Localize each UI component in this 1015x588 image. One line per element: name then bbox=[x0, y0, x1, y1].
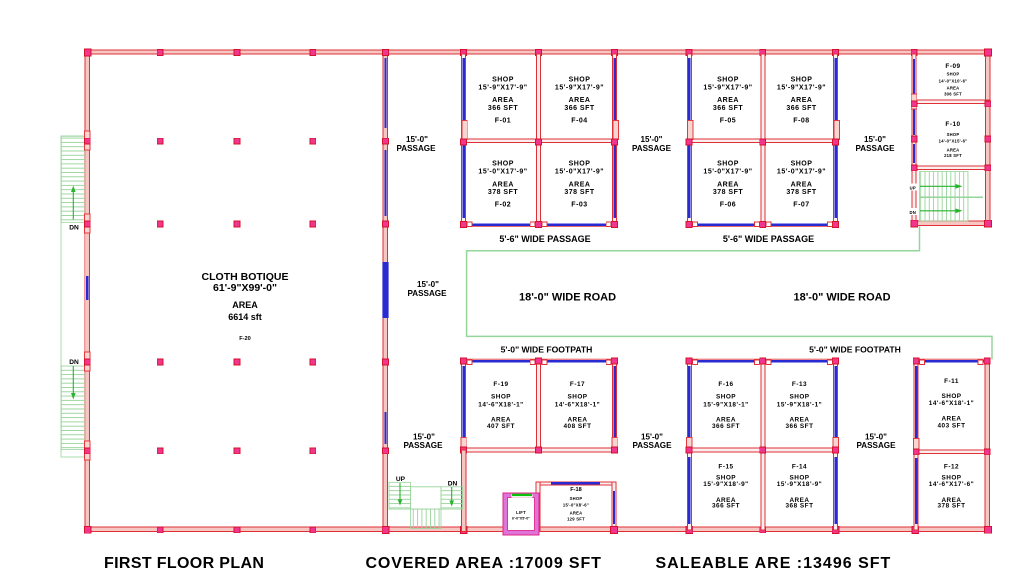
svg-text:SHOP: SHOP bbox=[791, 160, 813, 167]
svg-text:5'-0" WIDE FOOTPATH: 5'-0" WIDE FOOTPATH bbox=[809, 344, 901, 354]
svg-text:PASSAGE: PASSAGE bbox=[404, 441, 444, 450]
svg-text:AREA: AREA bbox=[947, 147, 960, 152]
svg-text:PASSAGE: PASSAGE bbox=[856, 144, 896, 153]
svg-text:SHOP: SHOP bbox=[569, 160, 591, 167]
svg-text:378 SFT: 378 SFT bbox=[564, 189, 595, 196]
svg-text:5'-6" WIDE PASSAGE: 5'-6" WIDE PASSAGE bbox=[723, 234, 814, 244]
svg-text:368 SFT: 368 SFT bbox=[785, 503, 813, 510]
svg-text:AREA: AREA bbox=[941, 415, 961, 422]
svg-text:218 SFT: 218 SFT bbox=[944, 153, 962, 158]
svg-text:FIRST FLOOR PLAN: FIRST FLOOR PLAN bbox=[104, 555, 264, 572]
svg-text:15'-9"X18'-1": 15'-9"X18'-1" bbox=[703, 401, 748, 408]
svg-text:PASSAGE: PASSAGE bbox=[857, 441, 897, 450]
svg-text:F-10: F-10 bbox=[945, 121, 960, 128]
svg-text:AREA: AREA bbox=[569, 97, 591, 104]
svg-text:15'-0": 15'-0" bbox=[641, 135, 663, 144]
svg-text:UP: UP bbox=[396, 476, 406, 483]
svg-text:14'-0"X10'-6": 14'-0"X10'-6" bbox=[939, 78, 968, 83]
svg-text:5'-0" WIDE FOOTPATH: 5'-0" WIDE FOOTPATH bbox=[501, 344, 593, 354]
svg-text:15'-9"X18'-1": 15'-9"X18'-1" bbox=[777, 401, 822, 408]
svg-text:306 SFT: 306 SFT bbox=[944, 92, 962, 97]
svg-text:F-18: F-18 bbox=[570, 487, 582, 493]
svg-text:PASSAGE: PASSAGE bbox=[408, 289, 448, 298]
svg-text:14'-6"X18'-1": 14'-6"X18'-1" bbox=[478, 401, 523, 408]
svg-text:15'-0"X17'-9": 15'-0"X17'-9" bbox=[478, 169, 527, 176]
svg-text:15'-0": 15'-0" bbox=[864, 135, 886, 144]
svg-text:14'-0"X15'-6": 14'-0"X15'-6" bbox=[939, 138, 968, 143]
svg-text:UP: UP bbox=[910, 185, 916, 190]
svg-text:DN: DN bbox=[69, 225, 79, 232]
svg-text:15'-0": 15'-0" bbox=[865, 432, 887, 441]
svg-text:SHOP: SHOP bbox=[789, 394, 809, 401]
svg-text:SALEABLE ARE :13496 SFT: SALEABLE ARE :13496 SFT bbox=[656, 555, 892, 572]
svg-text:PASSAGE: PASSAGE bbox=[397, 144, 437, 153]
svg-text:366 SFT: 366 SFT bbox=[713, 105, 744, 112]
svg-text:AREA: AREA bbox=[569, 182, 591, 189]
svg-text:14'-6"X17'-6": 14'-6"X17'-6" bbox=[929, 481, 974, 488]
svg-text:14'-6"X18'-1": 14'-6"X18'-1" bbox=[555, 401, 600, 408]
svg-text:15'-0"X17'-9": 15'-0"X17'-9" bbox=[703, 169, 752, 176]
svg-text:COVERED AREA :17009 SFT: COVERED AREA :17009 SFT bbox=[366, 555, 602, 572]
svg-text:LIFT: LIFT bbox=[516, 510, 526, 515]
svg-text:AREA: AREA bbox=[570, 511, 583, 516]
svg-text:378 SFT: 378 SFT bbox=[713, 189, 744, 196]
svg-text:F-06: F-06 bbox=[720, 202, 736, 209]
svg-text:61'-9"X99'-0": 61'-9"X99'-0" bbox=[213, 282, 277, 294]
svg-text:366 SFT: 366 SFT bbox=[786, 105, 817, 112]
svg-text:AREA: AREA bbox=[791, 97, 813, 104]
svg-text:SHOP: SHOP bbox=[491, 394, 511, 401]
svg-text:F-04: F-04 bbox=[571, 117, 587, 124]
svg-text:14'-6"X18'-1": 14'-6"X18'-1" bbox=[929, 400, 974, 407]
svg-text:PASSAGE: PASSAGE bbox=[633, 441, 673, 450]
svg-text:SHOP: SHOP bbox=[716, 394, 736, 401]
svg-text:SHOP: SHOP bbox=[717, 160, 739, 167]
svg-text:6614 sft: 6614 sft bbox=[228, 312, 262, 322]
svg-text:F-13: F-13 bbox=[792, 381, 807, 388]
svg-text:SHOP: SHOP bbox=[492, 76, 514, 83]
svg-text:6'-0"X5'-0": 6'-0"X5'-0" bbox=[512, 517, 530, 521]
svg-text:F-05: F-05 bbox=[720, 117, 736, 124]
svg-text:F-17: F-17 bbox=[570, 381, 585, 388]
svg-text:SHOP: SHOP bbox=[492, 160, 514, 167]
svg-text:407 SFT: 407 SFT bbox=[487, 423, 515, 430]
svg-text:15'-0"X8'-6": 15'-0"X8'-6" bbox=[563, 503, 589, 508]
svg-text:AREA: AREA bbox=[232, 300, 258, 310]
svg-text:15'-0": 15'-0" bbox=[641, 432, 663, 441]
svg-text:AREA: AREA bbox=[717, 97, 739, 104]
svg-text:15'-9"X18'-9": 15'-9"X18'-9" bbox=[777, 481, 822, 488]
svg-text:F-09: F-09 bbox=[945, 63, 960, 70]
svg-text:366 SFT: 366 SFT bbox=[564, 105, 595, 112]
svg-text:F-14: F-14 bbox=[792, 464, 807, 471]
svg-text:408 SFT: 408 SFT bbox=[563, 423, 591, 430]
svg-text:F-02: F-02 bbox=[495, 202, 511, 209]
svg-text:SHOP: SHOP bbox=[947, 132, 960, 137]
svg-text:AREA: AREA bbox=[492, 97, 514, 104]
svg-text:366 SFT: 366 SFT bbox=[488, 105, 519, 112]
svg-text:18'-0" WIDE ROAD: 18'-0" WIDE ROAD bbox=[793, 292, 890, 304]
svg-text:F-11: F-11 bbox=[944, 378, 959, 385]
svg-text:15'-0": 15'-0" bbox=[413, 432, 435, 441]
svg-text:F-20: F-20 bbox=[239, 336, 251, 342]
svg-text:15'-9"X17'-9": 15'-9"X17'-9" bbox=[777, 85, 826, 92]
svg-text:5'-6" WIDE PASSAGE: 5'-6" WIDE PASSAGE bbox=[499, 234, 590, 244]
svg-text:378 SFT: 378 SFT bbox=[488, 189, 519, 196]
svg-text:378 SFT: 378 SFT bbox=[937, 503, 965, 510]
svg-text:15'-9"X17'-9": 15'-9"X17'-9" bbox=[703, 85, 752, 92]
svg-text:15'-0"X17'-9": 15'-0"X17'-9" bbox=[555, 169, 604, 176]
svg-text:F-19: F-19 bbox=[493, 381, 508, 388]
svg-text:SHOP: SHOP bbox=[791, 76, 813, 83]
svg-text:15'-0": 15'-0" bbox=[406, 135, 428, 144]
svg-text:15'-0"X17'-9": 15'-0"X17'-9" bbox=[777, 169, 826, 176]
svg-text:AREA: AREA bbox=[492, 182, 514, 189]
svg-text:15'-9"X17'-9": 15'-9"X17'-9" bbox=[478, 85, 527, 92]
svg-text:AREA: AREA bbox=[791, 182, 813, 189]
svg-text:378 SFT: 378 SFT bbox=[786, 189, 817, 196]
svg-text:F-12: F-12 bbox=[944, 464, 959, 471]
svg-text:129 SFT: 129 SFT bbox=[567, 517, 585, 522]
svg-text:SHOP: SHOP bbox=[947, 72, 960, 77]
svg-text:15'-9"X17'-9": 15'-9"X17'-9" bbox=[555, 85, 604, 92]
svg-text:DN: DN bbox=[910, 210, 917, 215]
svg-text:F-15: F-15 bbox=[718, 464, 733, 471]
svg-text:AREA: AREA bbox=[947, 86, 960, 91]
svg-text:SHOP: SHOP bbox=[569, 76, 591, 83]
svg-text:F-07: F-07 bbox=[793, 202, 809, 209]
svg-text:403 SFT: 403 SFT bbox=[937, 423, 965, 430]
svg-text:F-08: F-08 bbox=[793, 117, 809, 124]
svg-text:DN: DN bbox=[448, 480, 458, 487]
svg-text:F-01: F-01 bbox=[495, 117, 511, 124]
svg-text:DN: DN bbox=[69, 359, 79, 366]
svg-text:SHOP: SHOP bbox=[567, 394, 587, 401]
svg-text:AREA: AREA bbox=[717, 182, 739, 189]
svg-text:PASSAGE: PASSAGE bbox=[632, 144, 672, 153]
svg-text:18'-0" WIDE ROAD: 18'-0" WIDE ROAD bbox=[519, 292, 616, 304]
svg-text:F-03: F-03 bbox=[571, 202, 587, 209]
svg-text:366 SFT: 366 SFT bbox=[712, 423, 740, 430]
svg-text:15'-0": 15'-0" bbox=[417, 280, 439, 289]
svg-text:SHOP: SHOP bbox=[570, 496, 583, 501]
svg-text:366 SFT: 366 SFT bbox=[712, 503, 740, 510]
svg-text:SHOP: SHOP bbox=[717, 76, 739, 83]
svg-text:366 SFT: 366 SFT bbox=[785, 423, 813, 430]
svg-text:15'-9"X18'-9": 15'-9"X18'-9" bbox=[703, 481, 748, 488]
svg-text:F-16: F-16 bbox=[718, 381, 733, 388]
